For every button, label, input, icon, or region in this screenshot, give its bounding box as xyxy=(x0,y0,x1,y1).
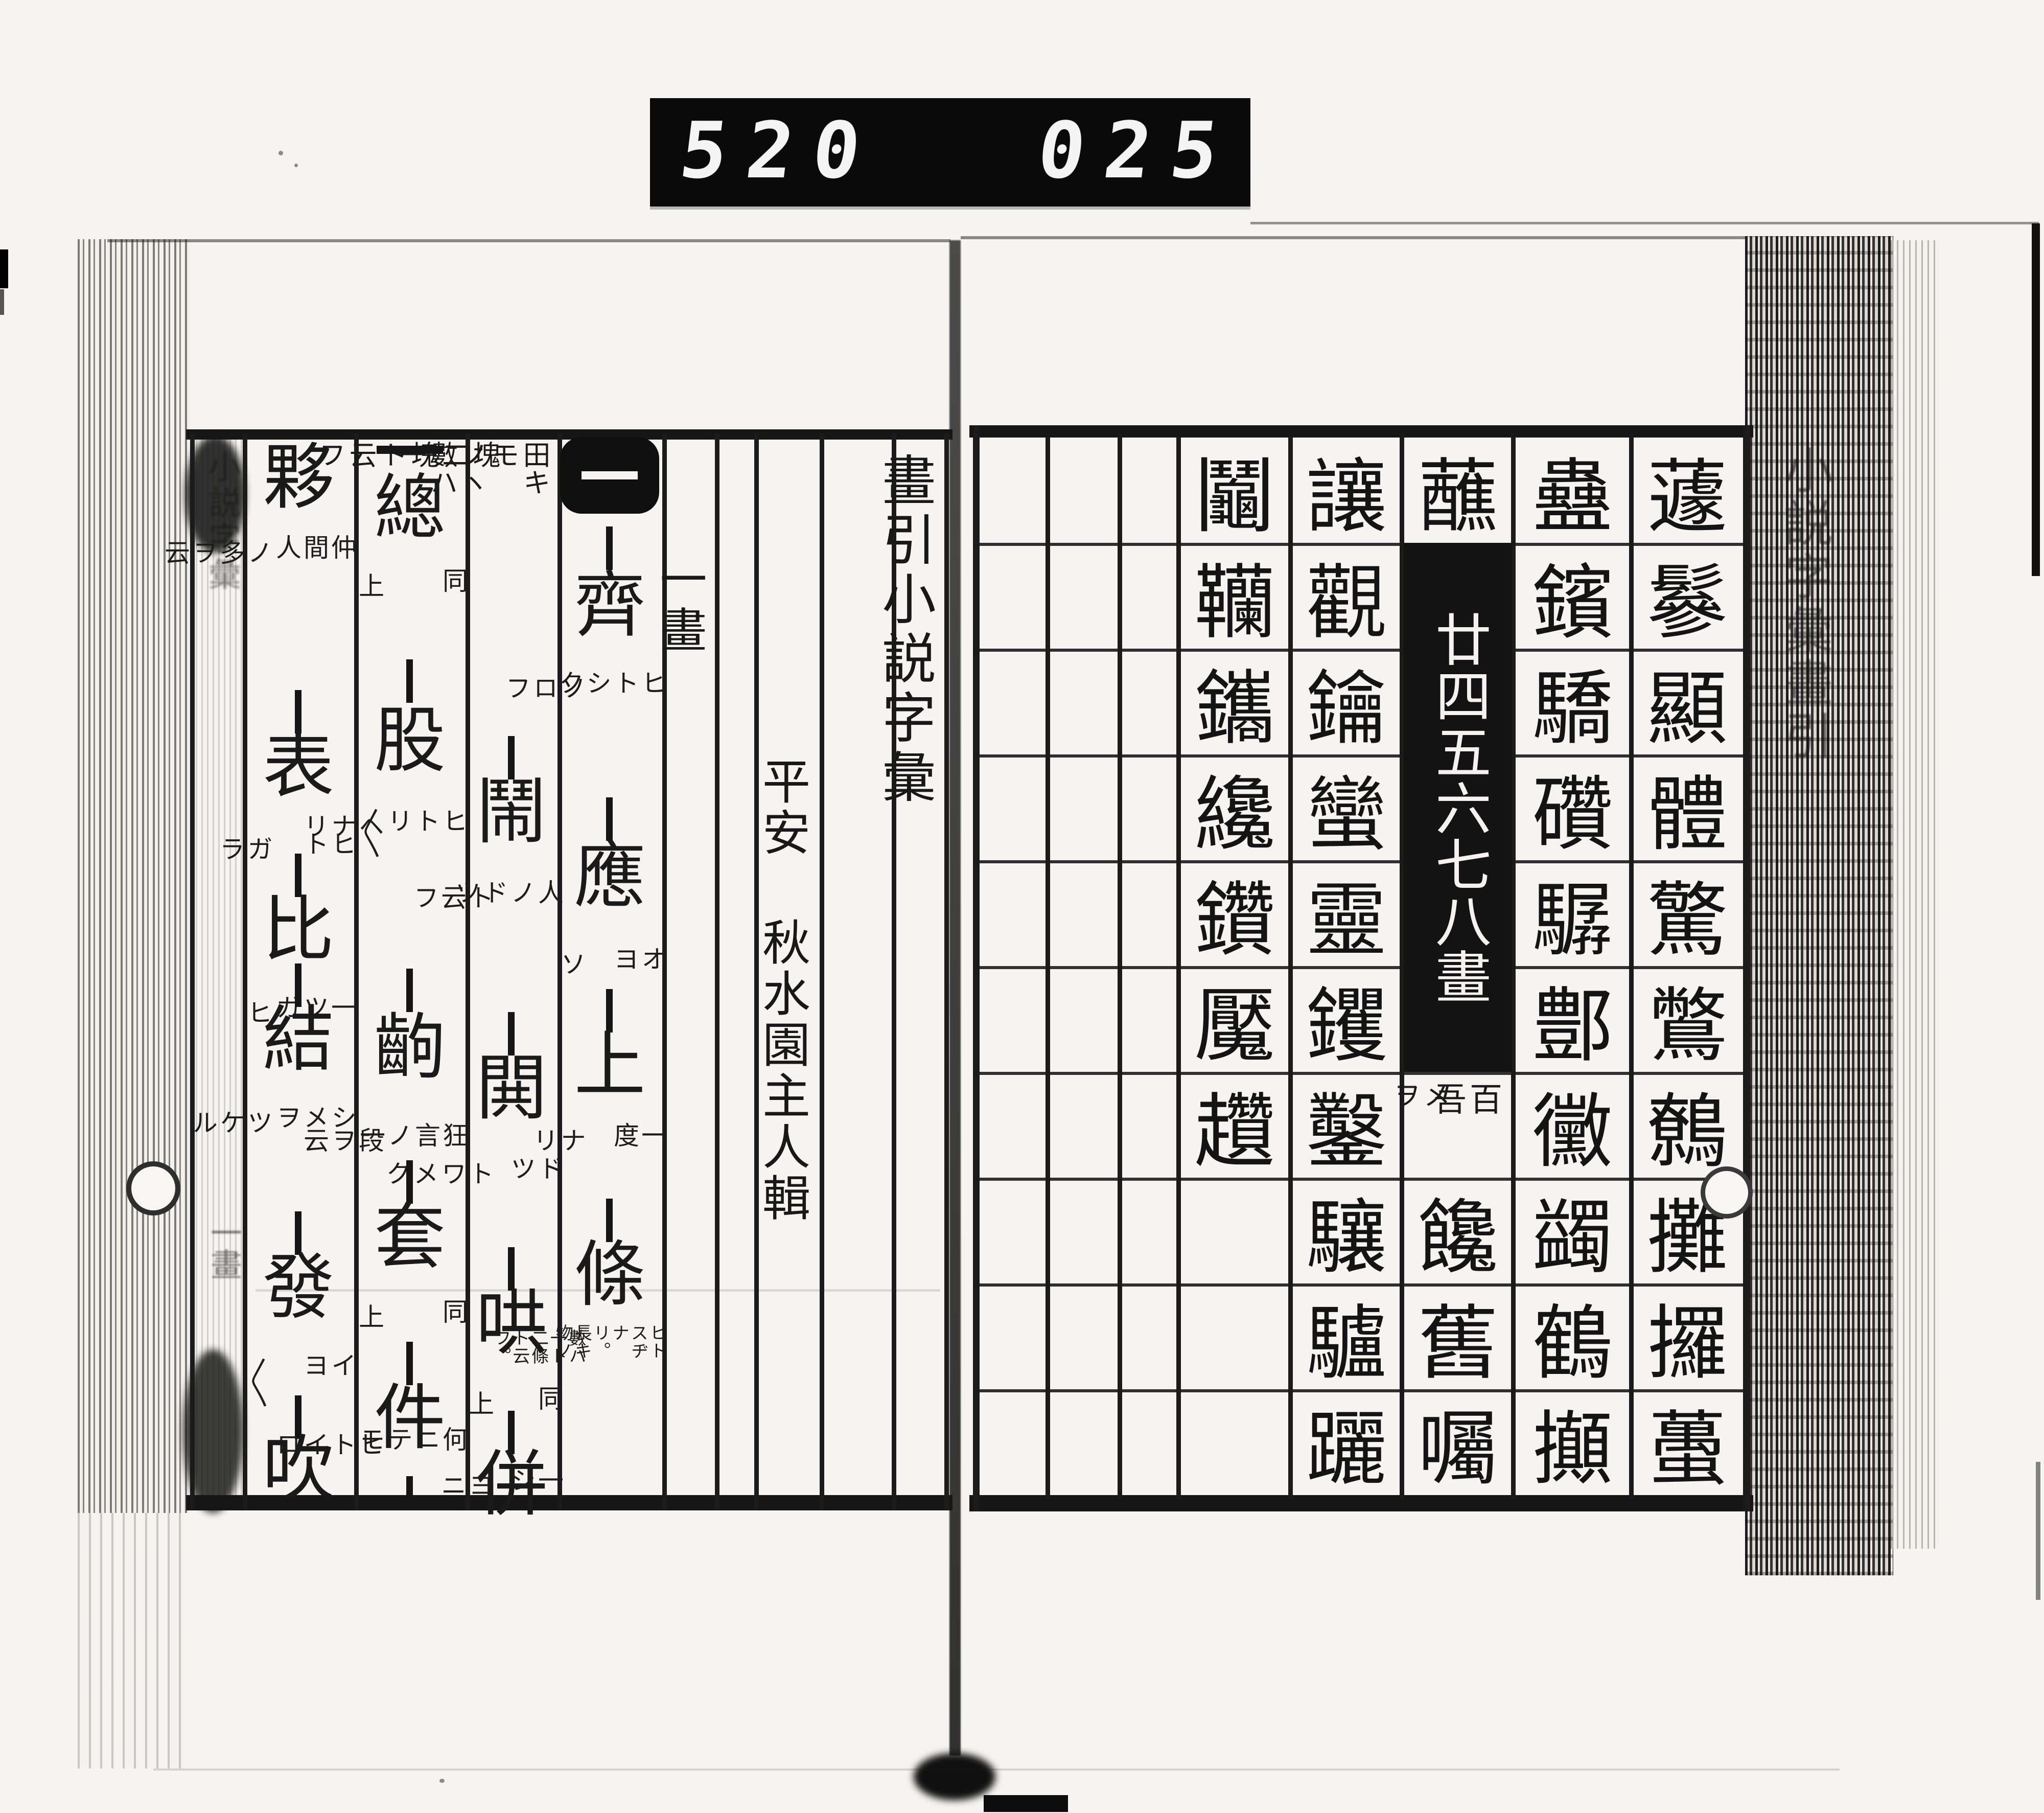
annotation-left: 段ヲ云 xyxy=(353,1127,383,1154)
annotation-left: ガラ xyxy=(241,836,272,862)
entry-main-char: 上 xyxy=(558,1030,662,1101)
small-note-right: 百吾 xyxy=(1465,1082,1501,1115)
entry-main-char: 夥 xyxy=(243,442,354,514)
annotation-left: ソ xyxy=(554,951,585,977)
scan-right-edge-mark xyxy=(2032,223,2040,576)
punch-hole-right xyxy=(1701,1166,1753,1219)
entry-main-char: 齣 xyxy=(354,1012,466,1084)
kanji-cell: 鷯 xyxy=(1633,1072,1741,1178)
kanji-cell: 魘 xyxy=(1180,966,1289,1072)
annotation-right: 同 xyxy=(436,567,467,594)
kanji-cell: 囑 xyxy=(1404,1389,1512,1495)
kanji-cell: 攧 xyxy=(1515,1389,1630,1495)
kanji-cell: 纔 xyxy=(1180,754,1289,860)
annotation-right: 仲間人 xyxy=(325,534,356,561)
kanji-cell: 觀 xyxy=(1292,543,1401,649)
annotation-right: 同 xyxy=(532,1385,563,1412)
kanji-cell: 鶴 xyxy=(1515,1283,1630,1389)
kanji-cell: 靈 xyxy=(1292,860,1401,966)
annotation-right: 何ニテモ xyxy=(436,1426,467,1453)
kanji-cell: 驤 xyxy=(1292,1178,1401,1283)
punch-hole-left xyxy=(126,1161,180,1215)
annotation-right: ヒトリ〱 xyxy=(436,808,467,860)
gutter-bottom-blot xyxy=(914,1753,995,1800)
annotation-left: ト云フ xyxy=(462,884,493,911)
kanji-cell: 鑌 xyxy=(1515,543,1630,649)
dust-speck xyxy=(278,151,283,155)
bottom-black-bar xyxy=(984,1795,1068,1812)
column-rule xyxy=(243,433,247,1510)
kanji-cell: 鬖 xyxy=(1633,543,1741,649)
left-margin-section-mark: 一畫 xyxy=(200,1217,246,1280)
annotation-right: イヨ xyxy=(325,1352,356,1379)
entry-main-char: 閧 xyxy=(466,1053,558,1124)
annotation-left: ヘナリ xyxy=(353,813,383,839)
kanji-cell: 體 xyxy=(1633,754,1741,860)
entry-main-char: 鬧 xyxy=(466,777,558,848)
annotation-right: 一度 xyxy=(635,1122,666,1149)
annotation-left: ヨニ xyxy=(462,1472,493,1499)
column-rule xyxy=(944,433,949,1510)
column-rule xyxy=(820,433,824,1510)
kanji-cell: 蠲 xyxy=(1515,1178,1630,1283)
entry-main-char: 結 xyxy=(243,1004,354,1076)
left-page-top-edge xyxy=(107,239,950,242)
entry-main-char: 套 xyxy=(354,1202,466,1274)
kanji-cell: 礸 xyxy=(1515,754,1630,860)
kanji-cell: 顯 xyxy=(1633,649,1741,754)
author-line: 平安 秋水園主人輯 xyxy=(760,756,817,1224)
kanji-cell: 鑽 xyxy=(1180,860,1289,966)
one-lead-mark xyxy=(377,446,443,454)
annotation-right: ヒト xyxy=(325,831,356,857)
counter-left-digits: 520 xyxy=(675,105,885,196)
annotation-left: 上 xyxy=(353,572,383,599)
counter-right-digits: 025. xyxy=(1033,105,1309,196)
entry-main-char: 總 xyxy=(354,473,466,544)
kanji-cell: 讓 xyxy=(1292,437,1401,543)
annotation-right: 同 xyxy=(436,1298,467,1325)
annotation-right: ヒトスヂナリ。長キ物ノ xyxy=(635,1324,666,1360)
annotation-left: ナリ xyxy=(554,1127,585,1154)
microfilm-frame-counter: 520 025. xyxy=(650,98,1250,206)
annotation-left: 上 xyxy=(462,1390,493,1417)
kanji-cell: 鬮 xyxy=(1180,437,1289,543)
annotation-right: ドツ xyxy=(532,1155,563,1182)
annotation-left: 〱 xyxy=(241,1357,272,1409)
scan-left-edge-nub xyxy=(0,249,8,288)
kanji-cell: 鄷 xyxy=(1515,966,1630,1072)
one-prefix-mark xyxy=(406,659,413,703)
lead-note-left: 塊二塊ト云フ xyxy=(468,441,499,468)
right-page-edge-texture xyxy=(1745,236,1893,1575)
kanji-cell: 躧 xyxy=(1292,1389,1401,1495)
entry-main-char: 哄 xyxy=(466,1288,558,1360)
kanji-cell: 驢 xyxy=(1292,1283,1401,1389)
scanned-book-spread: 小説字彙畫引 小説字彙 一畫 520 025. 齊ヒトシクソロフ應オヨソ上一度ナ… xyxy=(0,0,2044,1813)
kanji-cell: 鑿 xyxy=(1292,1072,1401,1178)
section-one-header xyxy=(560,437,659,514)
scan-top-line xyxy=(1250,222,2039,224)
annotation-right: 狂言ノ一 xyxy=(436,1122,467,1149)
kanji-cell: 驕 xyxy=(1515,649,1630,754)
lead-note-right: 田キモノヽ數ハ一 xyxy=(516,441,549,496)
page-bottom-edge xyxy=(153,1769,1840,1771)
annotation-left: ソロフ xyxy=(554,675,585,701)
right-page-running-title: 小説字彙畫引 xyxy=(1769,445,1840,764)
kanji-cell: 蘸 xyxy=(1404,437,1512,543)
entry-main-char: 股 xyxy=(354,705,466,777)
dust-speck xyxy=(294,164,298,167)
kanji-cell: 鑰 xyxy=(1292,649,1401,754)
left-page-edge-texture xyxy=(78,239,190,1513)
kanji-cell: 蠆 xyxy=(1633,1389,1741,1495)
kanji-cell: 钁 xyxy=(1292,966,1401,1072)
annotation-right: ヒトシク xyxy=(635,670,666,696)
annotation-right: シメヲ xyxy=(325,1104,356,1131)
kanji-cell: 黴 xyxy=(1515,1072,1630,1178)
kanji-cell: 饞 xyxy=(1404,1178,1512,1283)
kanji-cell: 鑴 xyxy=(1180,649,1289,754)
left-page-edge-texture-fade xyxy=(78,1513,190,1769)
kanji-cell: 攞 xyxy=(1633,1283,1741,1389)
scan-right-edge-mark-2 xyxy=(2036,1462,2040,1600)
kanji-cell: 舊 xyxy=(1404,1283,1512,1389)
annotation-left: トワメク xyxy=(462,1160,493,1187)
annotation-right: 人ノドツ xyxy=(532,879,563,906)
book-title: 畫引小説字彙 xyxy=(890,452,943,808)
kanji-cell: 蠻 xyxy=(1292,754,1401,860)
entry-main-char: 條 xyxy=(558,1240,662,1311)
annotation-left: 上 xyxy=(353,1303,383,1330)
column-rule xyxy=(715,433,719,1510)
kanji-cell: 蠱 xyxy=(1515,437,1630,543)
book-gutter-fold xyxy=(949,240,961,1756)
column-rule xyxy=(190,433,195,1510)
kanji-cell: 驚 xyxy=(1633,860,1741,966)
annotation-left: ノ多ヲ云 xyxy=(241,539,272,566)
entry-main-char: 比 xyxy=(243,894,354,966)
entry-main-char: 吹 xyxy=(243,1434,354,1505)
stroke-section-label: 廿四五六七八畫 xyxy=(1404,543,1512,1072)
right-page-edge-texture-fade xyxy=(1891,240,1939,1549)
annotation-left: 數ハ一ト二條ト云フ。 xyxy=(554,1329,585,1365)
stroke-section-label-text: 廿四五六七八畫 xyxy=(1425,611,1491,1004)
kanji-cell: 韊 xyxy=(1180,543,1289,649)
kanji-cell: 鷩 xyxy=(1633,966,1741,1072)
section-header-ichikaku: 一畫 xyxy=(664,555,713,657)
entry-main-char: 發 xyxy=(243,1252,354,1324)
dust-speck xyxy=(439,1779,445,1783)
one-prefix-mark xyxy=(406,1476,413,1496)
section-one-header-glyph xyxy=(582,471,638,479)
kanji-cell: 趲 xyxy=(1180,1072,1289,1178)
right-page-top-edge xyxy=(961,236,1748,239)
small-note-left: メヲ xyxy=(1419,1081,1450,1109)
entry-main-char: 應 xyxy=(558,841,662,912)
annotation-left: ヒトイロ xyxy=(353,1431,383,1458)
kanji-cell: 驏 xyxy=(1515,860,1630,966)
kanji-cell: 蘧 xyxy=(1633,437,1741,543)
annotation-left: ツケル xyxy=(241,1109,272,1136)
annotation-right: オヨ xyxy=(635,946,666,972)
annotation-right: 一シ xyxy=(532,1467,563,1494)
scan-left-edge-nub-2 xyxy=(0,289,4,315)
entry-main-char: 表 xyxy=(243,731,354,802)
